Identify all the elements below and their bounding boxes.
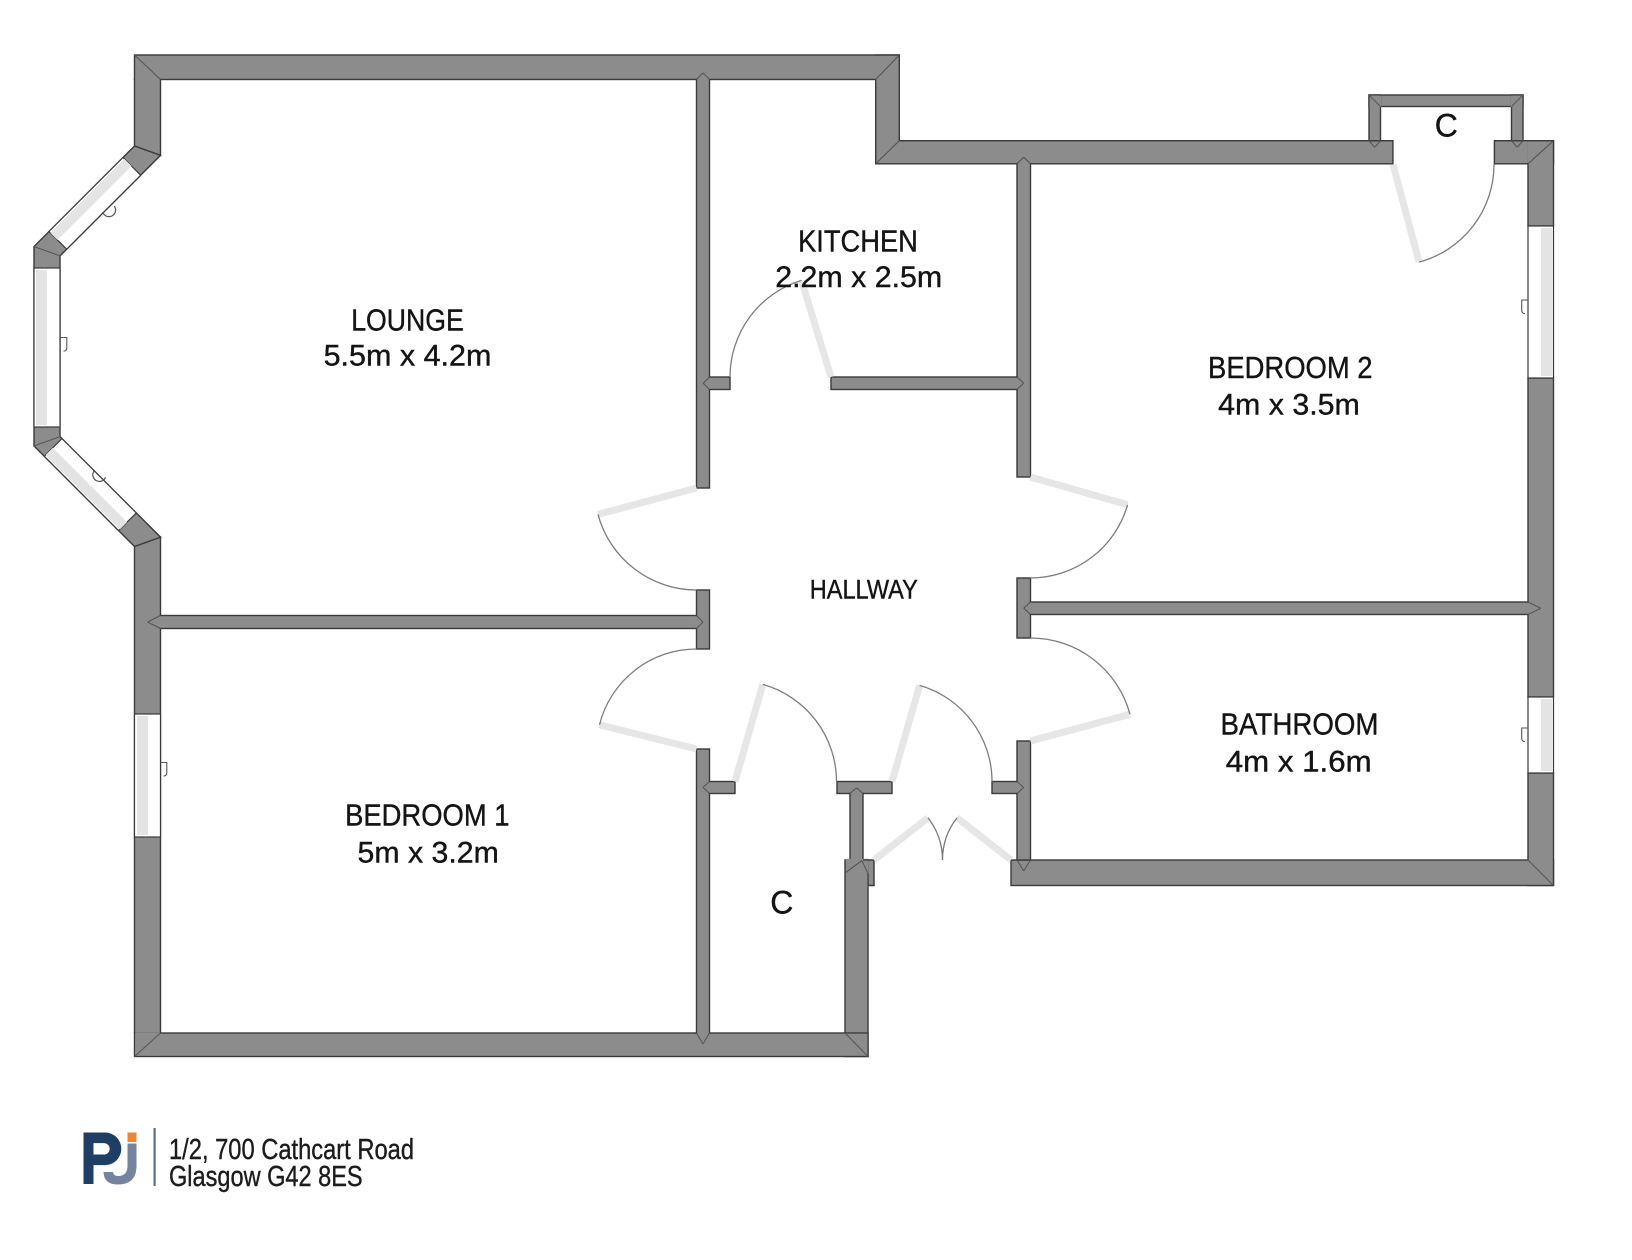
svg-text:HALLWAY: HALLWAY [810,575,918,605]
svg-text:C: C [770,885,793,921]
svg-text:2.2m x 2.5m: 2.2m x 2.5m [775,261,942,294]
svg-text:BATHROOM: BATHROOM [1221,707,1379,742]
svg-text:4m x 1.6m: 4m x 1.6m [1226,746,1372,779]
svg-text:C: C [1435,108,1458,144]
svg-text:5m x 3.2m: 5m x 3.2m [358,837,499,870]
svg-text:5.5m x 4.2m: 5.5m x 4.2m [324,340,492,373]
svg-text:BEDROOM 1: BEDROOM 1 [345,797,509,832]
svg-text:Glasgow G42 8ES: Glasgow G42 8ES [169,1161,363,1193]
svg-text:LOUNGE: LOUNGE [351,302,464,337]
svg-text:BEDROOM 2: BEDROOM 2 [1208,350,1373,385]
svg-text:KITCHEN: KITCHEN [798,224,918,259]
svg-text:4m x 3.5m: 4m x 3.5m [1218,389,1360,422]
